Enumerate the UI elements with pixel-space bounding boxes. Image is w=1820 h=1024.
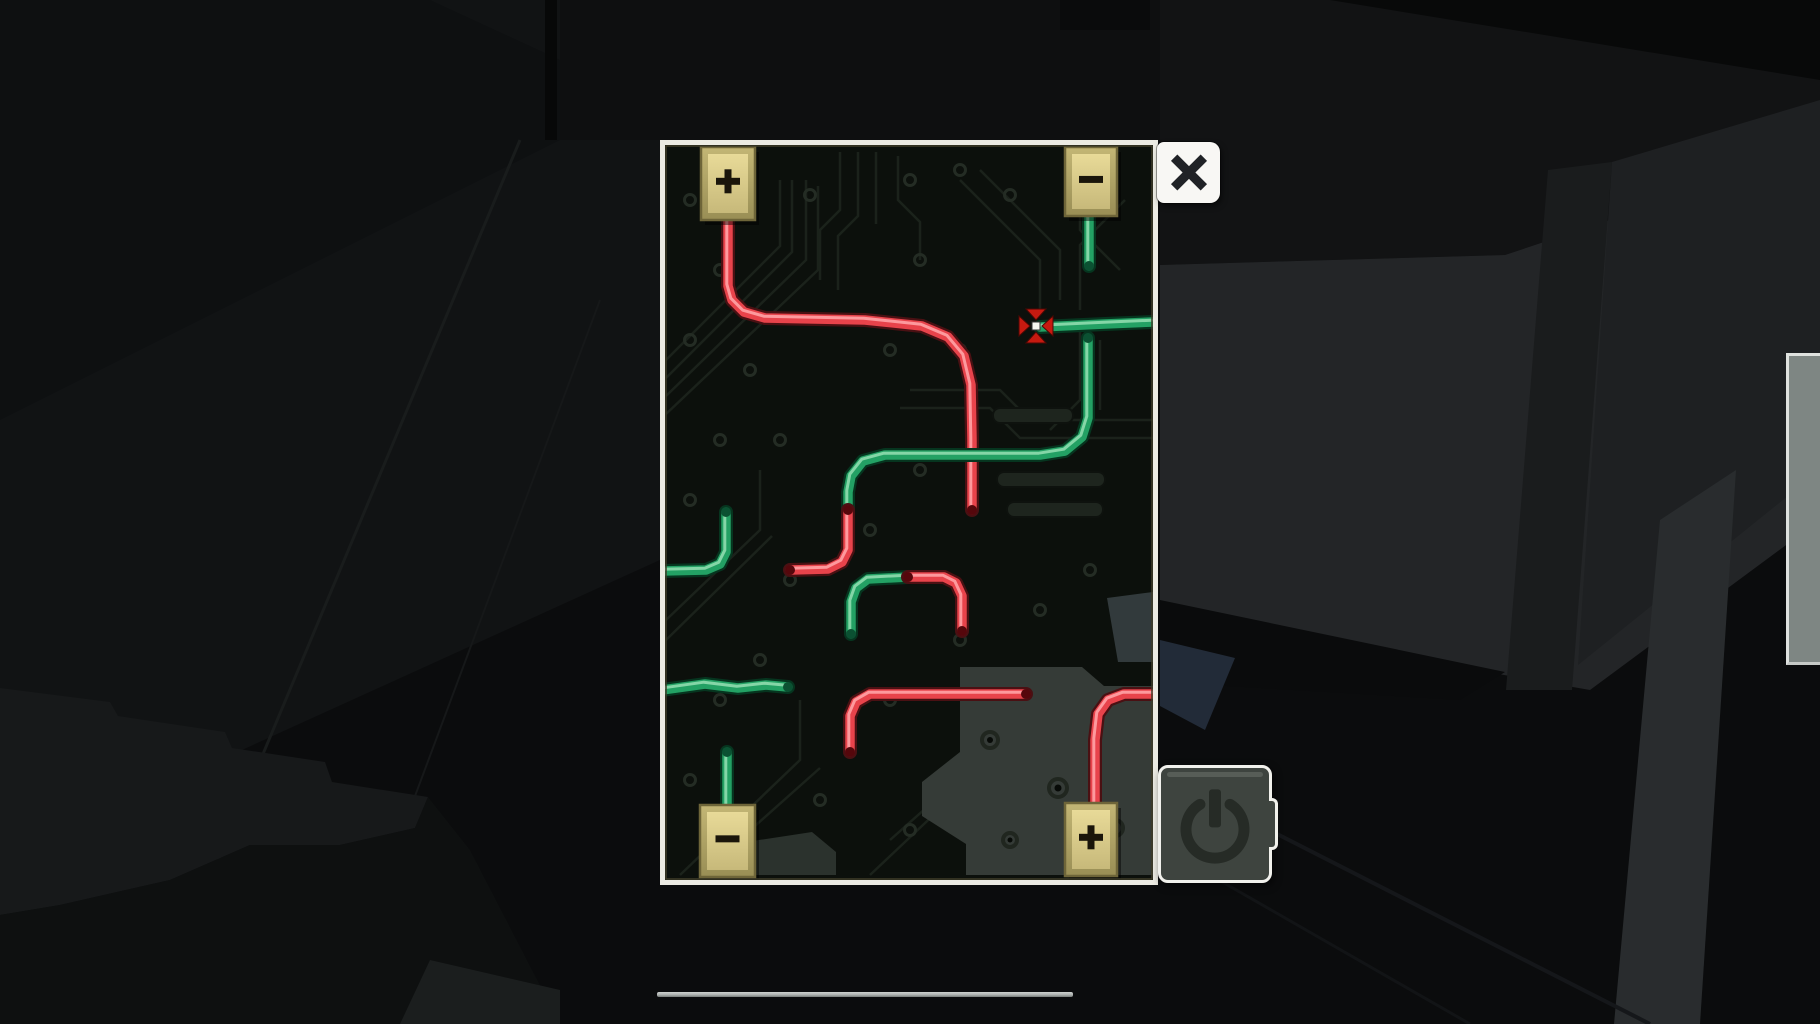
power-button[interactable]	[1158, 765, 1272, 883]
terminal-top-right	[1065, 147, 1121, 221]
power-icon	[1176, 787, 1254, 865]
game-screen	[0, 0, 1820, 1024]
circuit-board-texture	[663, 143, 1155, 882]
terminal-bottom-left	[700, 805, 759, 882]
wire-w7-green-horizontal-left[interactable]	[661, 682, 793, 692]
right-edge-tab[interactable]	[1786, 353, 1820, 665]
wire-w8-green-stub-bottomleft[interactable]	[722, 747, 732, 806]
terminal-sign--	[716, 835, 740, 842]
terminal-top-left	[701, 147, 759, 225]
terminal-sign--	[1079, 176, 1103, 183]
terminal-bottom-right	[1065, 803, 1121, 881]
power-button-highlight	[1167, 772, 1263, 777]
close-button[interactable]	[1157, 142, 1220, 203]
bottom-progress-line	[657, 992, 1073, 997]
wire-w2-green-stub-topright[interactable]	[1084, 214, 1094, 271]
circuit-puzzle-panel[interactable]	[660, 140, 1158, 885]
wire-w3-green-cursor-wire[interactable]	[1039, 320, 1153, 327]
